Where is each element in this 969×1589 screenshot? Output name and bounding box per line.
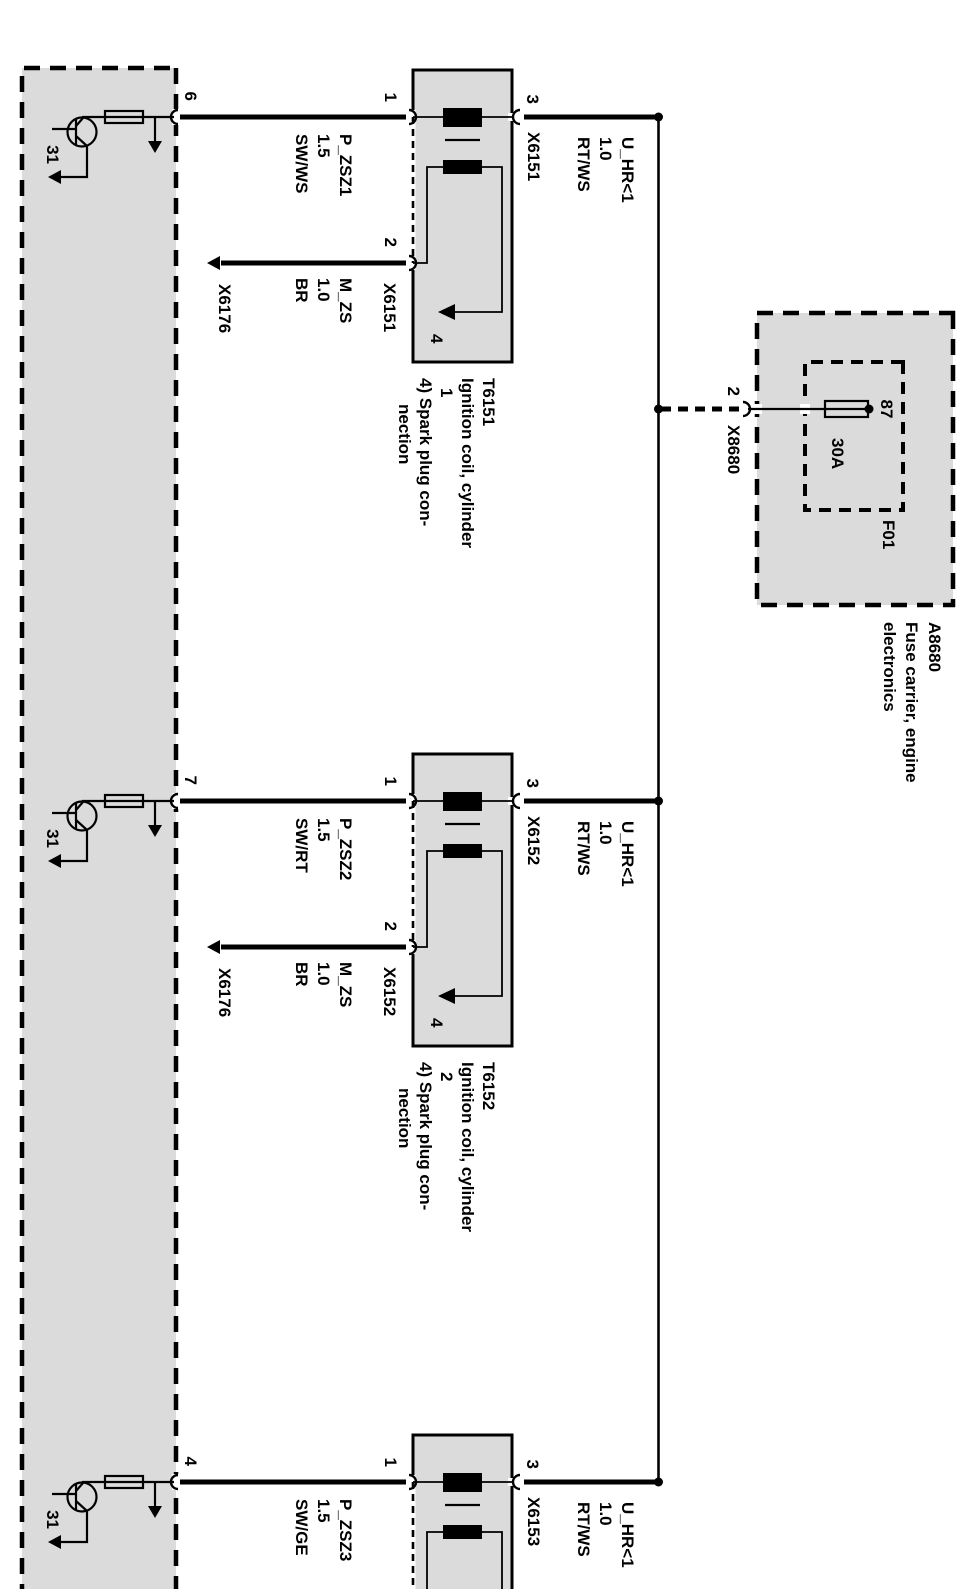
- ground-symbol-icon: [207, 940, 220, 954]
- supply-wire-color: RT/WS: [574, 137, 593, 192]
- pin3-label: 3: [523, 779, 542, 788]
- supply-wire-color: RT/WS: [574, 821, 593, 876]
- rotated-canvas: 31 31: [0, 0, 969, 1589]
- pin2-label: 2: [381, 238, 400, 247]
- fuse-carrier: 87 30A F01 A8680 Fuse carrier, engine el…: [661, 313, 953, 783]
- supply-wire-color: RT/WS: [574, 1502, 593, 1557]
- control-wire-color: SW/GE: [292, 1499, 311, 1556]
- ground-connector-label: X6176: [215, 284, 234, 333]
- ground-wire-name: M_ZS: [336, 278, 355, 323]
- coil-1-footnote-1: 4) Spark plug con-: [416, 378, 435, 526]
- fuse-carrier-desc-line1: Fuse carrier, engine: [902, 622, 921, 783]
- supply-wire-size: 1.0: [596, 1502, 615, 1526]
- fuse-id-label: F01: [879, 520, 898, 549]
- supply-wire-name: U_HR<1: [618, 137, 637, 203]
- supply-wire-name: U_HR<1: [618, 1502, 637, 1568]
- coil-2-desc-1: Ignition coil, cylinder: [458, 1062, 477, 1232]
- fuse-terminal-label: 87: [877, 400, 896, 419]
- ignition-coil-1: 4 6 1 2 3 X6151 X6151 X6176 U_HR<1 1.0 R…: [171, 70, 659, 548]
- ground-terminal-label: 31: [43, 829, 62, 848]
- pin1-label: 1: [381, 1458, 400, 1467]
- connector-label-pin2: X6152: [380, 967, 399, 1016]
- wiring-diagram-page: 31 31: [0, 0, 969, 1589]
- coil-2-footnote-1: 4) Spark plug con-: [416, 1062, 435, 1210]
- ecu-pin-label: 6: [181, 92, 200, 101]
- schematic-svg: 31 31: [0, 0, 969, 1589]
- connector-label-pin2: X6151: [380, 283, 399, 332]
- control-wire-size: 1.5: [314, 134, 333, 158]
- primary-winding: [443, 108, 482, 127]
- supply-wire-size: 1.0: [596, 137, 615, 161]
- control-wire-size: 1.5: [314, 818, 333, 842]
- bus-junction-dot: [654, 405, 663, 414]
- ecu-module: 31 31: [22, 68, 183, 1589]
- coil-1-pin4-label: 4: [427, 334, 446, 344]
- coil-1-desc-2: 1: [437, 388, 456, 397]
- ground-terminal-label: 31: [43, 1510, 62, 1529]
- supply-wire-size: 1.0: [596, 821, 615, 845]
- fuse-terminal-dot: [865, 405, 874, 414]
- coil-1-desc-1: Ignition coil, cylinder: [458, 378, 477, 548]
- connector-x8680-icon: [743, 402, 750, 416]
- fuse-carrier-id: A8680: [925, 622, 944, 672]
- ecu-pin-label: 7: [181, 776, 200, 785]
- ignition-coil-2: 4 7 1 2 3 X6152 X6152 X6176 U_HR<1 1.0 R…: [171, 754, 659, 1232]
- ground-terminal-label: 31: [43, 145, 62, 164]
- primary-winding: [443, 792, 482, 811]
- fuse-rating-label: 30A: [828, 438, 847, 469]
- connector-label-pin3: X6152: [524, 816, 543, 865]
- fuse-carrier-desc-line2: electronics: [880, 622, 899, 712]
- control-wire-name: P_ZSZ3: [336, 1499, 355, 1561]
- ground-connector-label: X6176: [215, 968, 234, 1017]
- coil-1-id: T6151: [479, 378, 498, 426]
- coil-2-id: T6152: [479, 1062, 498, 1110]
- secondary-winding: [443, 844, 482, 858]
- control-wire-size: 1.5: [314, 1499, 333, 1523]
- secondary-winding: [443, 1525, 482, 1539]
- pin2-label: 2: [381, 922, 400, 931]
- coil-1-footnote-2: nection: [395, 404, 414, 464]
- ground-symbol-icon: [207, 256, 220, 270]
- fuse-connector-label: X8680: [724, 425, 743, 474]
- ignition-coil-3: 4 1 3 X6153 U_HR<1 1.0 RT/WS P_ZSZ3 1.5 …: [171, 1435, 659, 1589]
- primary-winding: [443, 1473, 482, 1492]
- fuse-pin-label: 2: [724, 387, 743, 396]
- fuse-carrier-box: [757, 313, 953, 605]
- ground-wire-name: M_ZS: [336, 962, 355, 1007]
- supply-wire-name: U_HR<1: [618, 821, 637, 887]
- ground-wire-size: 1.0: [314, 962, 333, 986]
- pin3-label: 3: [523, 1460, 542, 1469]
- ground-wire-size: 1.0: [314, 278, 333, 302]
- secondary-winding: [443, 160, 482, 174]
- pin3-label: 3: [523, 95, 542, 104]
- connector-label-pin3: X6151: [524, 132, 543, 181]
- ground-wire-color: BR: [292, 962, 311, 987]
- coil-2-pin4-label: 4: [427, 1018, 446, 1028]
- control-wire-name: P_ZSZ1: [336, 134, 355, 196]
- control-wire-color: SW/WS: [292, 134, 311, 194]
- ground-wire-color: BR: [292, 278, 311, 303]
- pin1-label: 1: [381, 93, 400, 102]
- connector-label-pin3: X6153: [524, 1497, 543, 1546]
- coil-2-desc-2: 2: [437, 1072, 456, 1081]
- control-wire-name: P_ZSZ2: [336, 818, 355, 880]
- ecu-pin-label: 4: [181, 1457, 200, 1467]
- pin1-label: 1: [381, 777, 400, 786]
- coil-2-footnote-2: nection: [395, 1088, 414, 1148]
- control-wire-color: SW/RT: [292, 818, 311, 873]
